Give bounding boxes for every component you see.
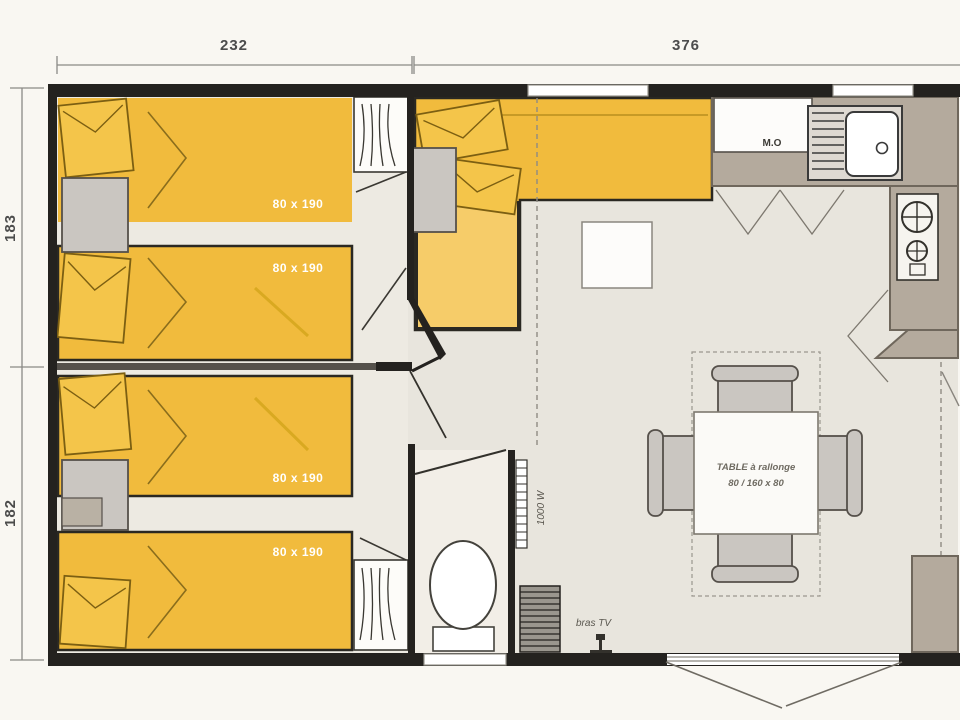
dining-table-size-label: 80 / 160 x 80 <box>728 478 784 489</box>
toilet-icon <box>430 541 496 651</box>
bed-size-label: 80 x 190 <box>273 197 324 211</box>
dimension-label-182: 182 <box>2 499 19 527</box>
chair <box>648 430 700 516</box>
coffee-table <box>582 222 652 288</box>
wall-bedroom-divider <box>57 363 408 370</box>
nightstand <box>62 178 128 252</box>
wall-top <box>48 84 960 97</box>
dining-table-label: TABLE à rallonge <box>717 462 796 473</box>
side-table <box>411 148 456 232</box>
wall-left <box>48 84 57 666</box>
water-heater-icon <box>520 586 560 652</box>
floor-plan: 232 376 183 182 80 x 190 80 <box>0 0 960 720</box>
floor-plan-page: 232 376 183 182 80 x 190 80 <box>0 0 960 720</box>
tv-bracket-label: bras TV <box>576 618 612 629</box>
bed-size-label: 80 x 190 <box>273 545 324 559</box>
pillow-icon <box>58 99 133 178</box>
tall-cabinet <box>912 556 958 652</box>
pillow-icon <box>57 253 130 342</box>
microwave-label: M.O <box>763 138 782 149</box>
dimension-label-232: 232 <box>220 37 248 54</box>
pillow-icon <box>60 576 131 648</box>
dimension-label-183: 183 <box>2 214 19 242</box>
chair <box>712 366 798 414</box>
pillow-icon <box>59 373 131 454</box>
wall <box>508 450 515 656</box>
nightstand <box>62 498 102 526</box>
sink-icon <box>808 106 902 180</box>
dimension-label-376: 376 <box>672 37 700 54</box>
bed-size-label: 80 x 190 <box>273 471 324 485</box>
chair <box>712 532 798 582</box>
wall-interior <box>407 96 414 300</box>
wall-stub <box>376 362 412 371</box>
hob-icon <box>897 194 938 280</box>
bed-size-label: 80 x 190 <box>273 261 324 275</box>
wall <box>408 444 415 656</box>
heater-power-label: 1000 W <box>536 489 547 525</box>
dining-table <box>694 412 818 534</box>
radiator-icon <box>516 460 527 548</box>
